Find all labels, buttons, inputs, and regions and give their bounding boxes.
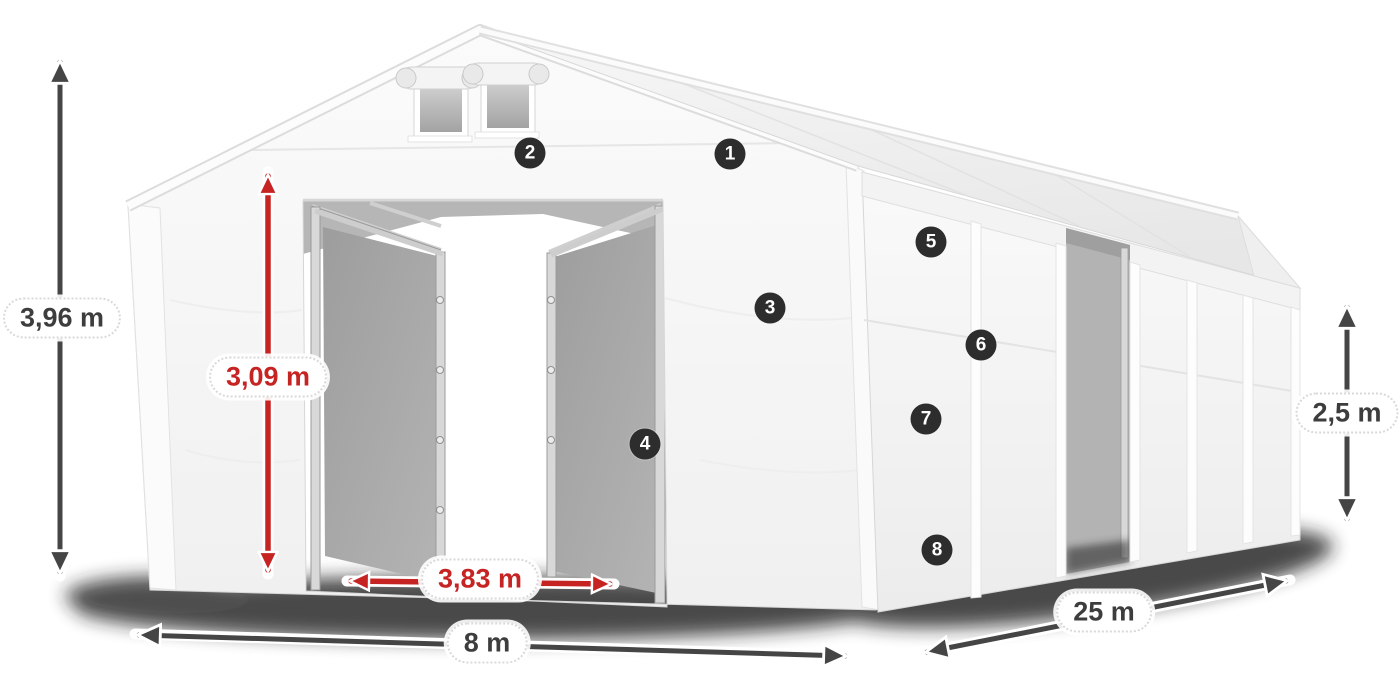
feature-marker-5: 5 bbox=[916, 227, 947, 258]
dimension-label-length: 25 m bbox=[1056, 591, 1152, 632]
feature-marker-8: 8 bbox=[922, 535, 953, 566]
feature-marker-1: 1 bbox=[715, 139, 746, 170]
feature-marker-2: 2 bbox=[515, 138, 546, 169]
side-door-opening bbox=[1066, 228, 1130, 574]
feature-marker-7: 7 bbox=[911, 404, 942, 435]
dimension-label-side-height: 2,5 m bbox=[1295, 392, 1398, 433]
dimension-label-width: 8 m bbox=[447, 622, 528, 663]
feature-marker-3: 3 bbox=[755, 293, 786, 324]
dimension-label-entrance-width: 3,83 m bbox=[421, 558, 539, 599]
dimension-label-clearance-height: 3,09 m bbox=[209, 356, 327, 397]
dimension-label-total-height: 3,96 m bbox=[3, 297, 121, 338]
tent-illustration bbox=[0, 0, 1400, 700]
tent-size-diagram: 3,96 m 3,09 m 3,83 m 8 m 25 m 2,5 m 1 2 … bbox=[0, 0, 1400, 700]
feature-marker-6: 6 bbox=[966, 330, 997, 361]
feature-marker-4: 4 bbox=[630, 429, 661, 460]
